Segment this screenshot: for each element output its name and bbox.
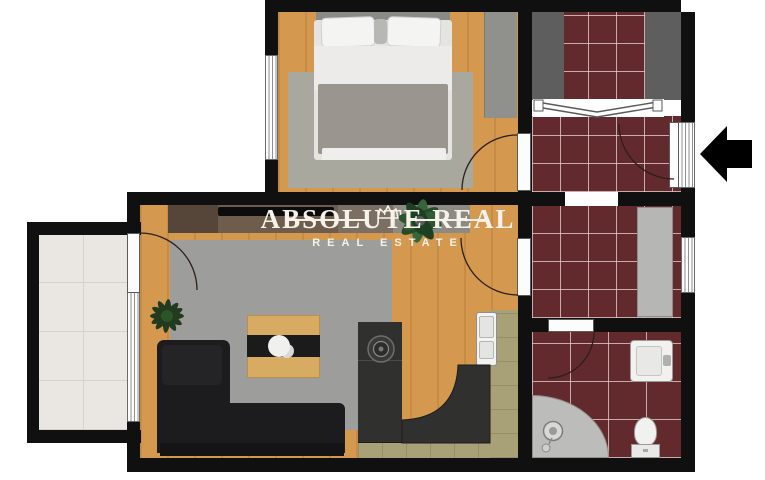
- floor-plan: ABSOLUTE REAL REAL ESTATE: [0, 0, 765, 480]
- kitchen-sink-basin-bottom: [479, 341, 494, 359]
- crown-icon: [374, 203, 402, 222]
- bathroom-door-leaf: [548, 319, 594, 332]
- bedroom-wardrobe: [484, 12, 517, 118]
- kitchen-counter-left: [358, 322, 402, 443]
- watermark-line-left: [287, 219, 369, 221]
- balcony-floor: [39, 235, 128, 430]
- toilet-bowl: [634, 417, 657, 446]
- balcony-door-leaf: [127, 233, 140, 293]
- bed-pillow-left: [320, 16, 375, 48]
- kitchen-counter-seam: [358, 360, 402, 362]
- watermark-subtitle: REAL ESTATE: [230, 237, 546, 249]
- wall-top: [265, 0, 681, 12]
- corridor-closet: [637, 207, 673, 317]
- entry-door-leaf: [669, 122, 679, 188]
- wall-balcony-top: [27, 222, 141, 235]
- hall-corridor-opening: [565, 192, 618, 206]
- sofa-cushion: [162, 345, 222, 385]
- toilet-flush-button: [643, 449, 648, 452]
- wall-balcony-bottom: [27, 430, 141, 443]
- closet-wardrobe-left: [532, 12, 564, 100]
- watermark: ABSOLUTE REAL REAL ESTATE: [230, 200, 546, 249]
- watermark-line-right: [407, 219, 489, 221]
- bed-pillow-center: [374, 19, 387, 44]
- bathroom-sink-basin: [636, 346, 662, 376]
- coffee-table-ornament: [268, 335, 290, 357]
- wall-balcony-left: [27, 235, 39, 430]
- corridor-window: [681, 237, 695, 293]
- bed-blanket: [318, 84, 448, 154]
- entry-hall-floor: [532, 116, 681, 192]
- bed-blanket-fold: [322, 148, 446, 160]
- arrow-left-icon: [700, 126, 752, 182]
- bathroom-sink-faucet: [663, 355, 671, 366]
- sofa-base: [160, 443, 344, 456]
- bedroom-door-leaf: [517, 133, 531, 191]
- closet-wardrobe-right: [645, 12, 681, 100]
- entry-door-frame: [678, 122, 695, 188]
- bedroom-window: [265, 55, 278, 160]
- bed-pillow-right: [386, 16, 441, 48]
- kitchen-sink-basin-top: [479, 316, 494, 338]
- closet-bifold-opening: [533, 99, 664, 117]
- wall-right: [681, 12, 695, 458]
- wall-bottom: [127, 458, 695, 472]
